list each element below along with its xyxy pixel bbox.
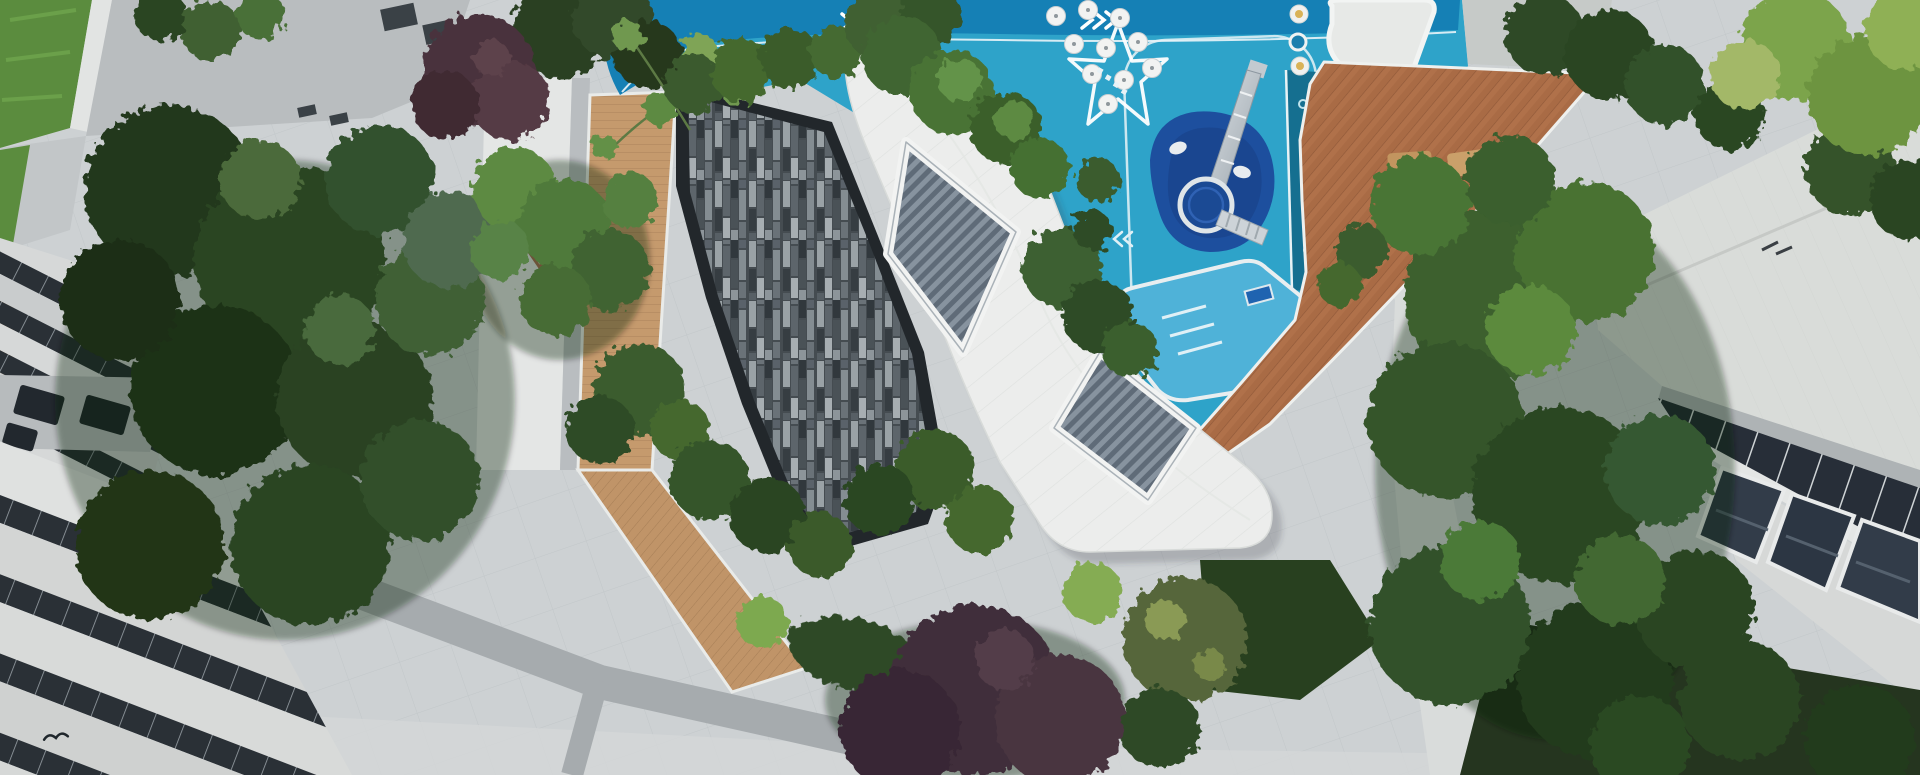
topiary-ball [736,596,788,648]
spa-jets [1290,5,1309,75]
olive-bush [1123,578,1247,702]
aerial-photo: Aerial drone photograph — residential co… [0,0,1920,775]
topiary-ball [1062,562,1122,622]
